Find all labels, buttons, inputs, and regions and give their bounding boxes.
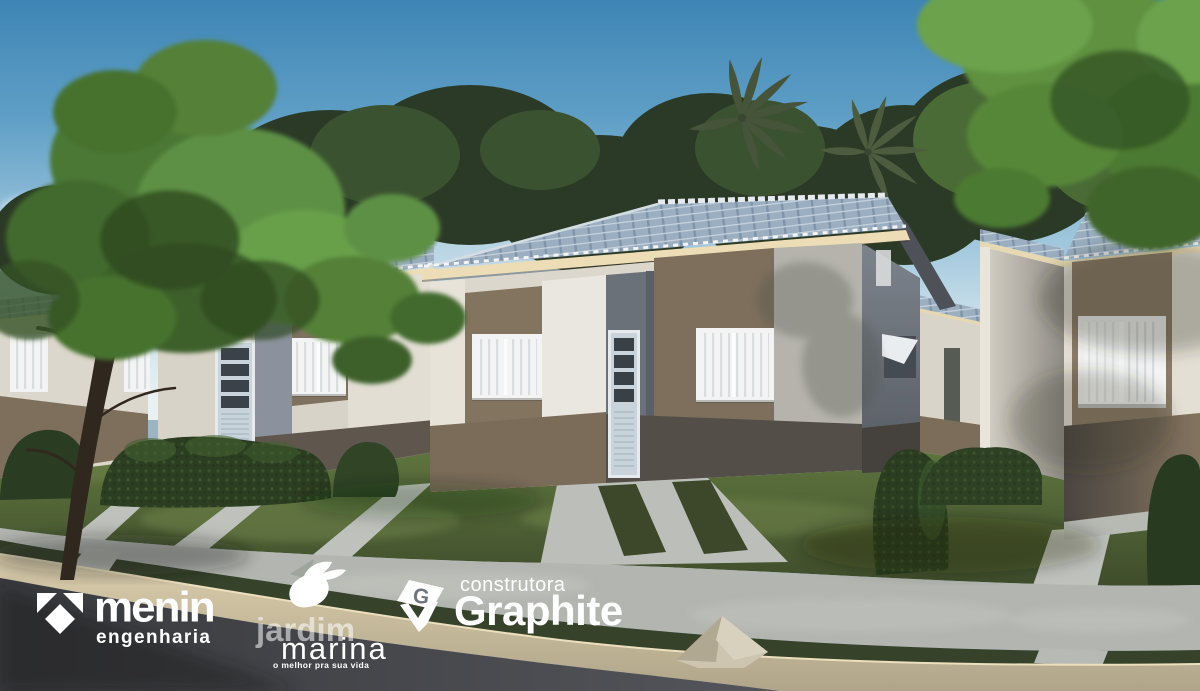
window (696, 328, 774, 403)
gem-icon: G (396, 578, 448, 642)
menin-wordmark: menin (94, 593, 214, 623)
menin-triangles-icon (36, 592, 84, 638)
graphite-wordmark: Graphite (454, 590, 623, 632)
jardim-marina-logo: jardim marina o melhor pra sua vida (252, 556, 402, 681)
menin-wordmark-block: menin engenharia (94, 592, 214, 647)
entry-door (608, 330, 640, 478)
awning-window (882, 334, 918, 378)
jardim-tagline: o melhor pra sua vida (273, 661, 369, 670)
dove-icon (282, 556, 358, 612)
menin-logo: menin engenharia (36, 592, 214, 647)
window (472, 334, 542, 401)
graphite-logo: G construtora Graphite (394, 569, 664, 649)
housing-development-render: menin engenharia jardim marina o melhor … (0, 0, 1200, 691)
